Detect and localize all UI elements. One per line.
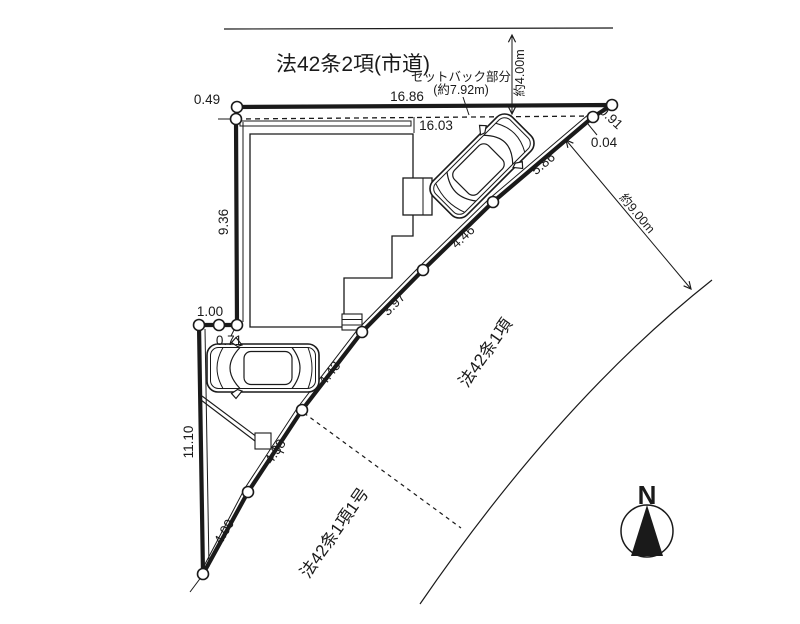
- curved-road-edge-line: [420, 280, 712, 604]
- entrance-porch: [403, 178, 432, 215]
- dim-diag-446: 4.46: [448, 222, 477, 251]
- road-right-label: 法42条1項: [455, 315, 516, 391]
- setback-caption-line1: セットバック部分: [411, 69, 511, 84]
- boundary-point: [232, 102, 243, 113]
- road-far-edge-line: [224, 28, 613, 29]
- boundary-point: [194, 320, 205, 331]
- dim-left-1110: 11.10: [181, 426, 196, 459]
- boundary-point: [232, 320, 243, 331]
- dim-offset: 0.49: [194, 92, 220, 107]
- fence-line: [202, 396, 257, 437]
- compass-north-label: N: [638, 480, 657, 510]
- boundary-point: [214, 320, 225, 331]
- boundary-point: [418, 265, 429, 276]
- north-arrow: N: [621, 480, 673, 557]
- compass-needle-icon: [631, 505, 663, 556]
- dim-diag-586: 5.86: [528, 149, 558, 177]
- dim-corner-004: 0.04: [591, 135, 618, 150]
- fence-line: [201, 400, 255, 441]
- dim-top-edge: 16.86: [390, 89, 424, 104]
- road-width-dim-label: 約4.00m: [512, 49, 527, 96]
- dim-jog-071: 0.71: [216, 333, 242, 348]
- boundary-point: [243, 487, 254, 498]
- site-plan-figure: 法42条2項(市道) 法42条1項 法42条1項1号 セットバック部分 (約7.…: [0, 0, 800, 624]
- boundary-point: [198, 569, 209, 580]
- site-plan-drawing: 法42条2項(市道) 法42条1項 法42条1項1号 セットバック部分 (約7.…: [0, 0, 800, 624]
- dim-jog-100: 1.00: [197, 304, 223, 319]
- to-road-dim-line: [566, 140, 691, 289]
- dim-left-936: 9.36: [216, 209, 231, 235]
- road-top-label: 法42条2項(市道): [276, 53, 430, 76]
- corner-004-leader: [588, 124, 597, 135]
- boundary-point: [297, 405, 308, 416]
- road-bottom-label: 法42条1項1号: [296, 484, 372, 582]
- setback-caption-line2: (約7.92m): [433, 82, 489, 97]
- dim-corner-091: 0.91: [596, 103, 625, 132]
- boundary-point: [357, 327, 368, 338]
- dim-diag-397: 3.97: [379, 289, 408, 318]
- boundary-point: [231, 114, 242, 125]
- building-eave-strip: [240, 121, 411, 126]
- lot-divider-dashed-line: [304, 413, 461, 528]
- to-road-dim-label: 約9.00m: [617, 190, 659, 236]
- boundary-point: [488, 197, 499, 208]
- dim-setback-edge: 16.03: [419, 118, 453, 133]
